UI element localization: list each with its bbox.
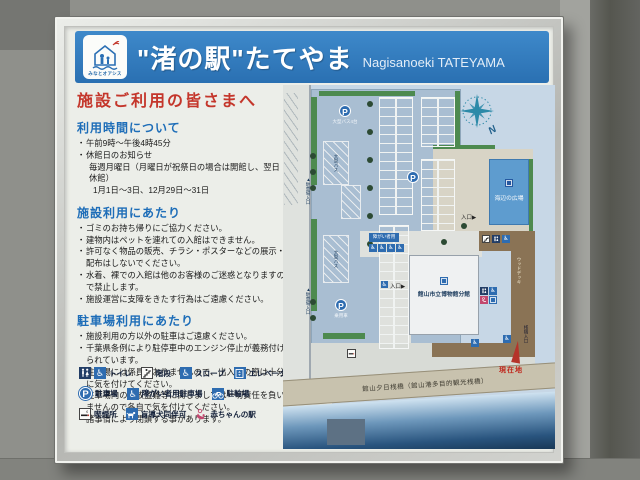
slope-icon: ♿	[180, 367, 192, 379]
parking-icon: P	[79, 387, 92, 400]
wheelchair-icon: ♿	[387, 244, 395, 252]
entrance-text: 入口	[461, 215, 472, 221]
facility-line: ゴミのお持ち帰りにご協力ください。	[77, 223, 285, 235]
lot-entrance-text: 駐車場入口	[306, 182, 311, 205]
green-strip	[311, 219, 317, 311]
parking-stalls	[421, 97, 455, 147]
parking-icon: P	[335, 299, 347, 311]
sign-title: "渚の駅"たてやま	[137, 39, 353, 76]
hours-heading: 利用時間について	[77, 119, 285, 136]
parking-stalls	[421, 159, 455, 231]
toilet-icon	[79, 367, 91, 379]
parking-icon: P	[339, 105, 351, 117]
bus-stall: 大型バス	[323, 235, 349, 283]
tree	[367, 213, 373, 219]
wheelchair-icon: ♿	[503, 335, 511, 343]
legend-parking: P 駐車場	[79, 387, 118, 400]
wall-dark-edge	[590, 0, 640, 480]
legend-label: スロープ	[195, 368, 225, 379]
legend-bicycle: 駐輪場	[212, 388, 250, 400]
tree	[367, 157, 373, 163]
bus-stall-label: 大型バス	[333, 154, 339, 172]
tree	[461, 223, 467, 229]
facility-line: 許可なく物品の販売、チラシ・ポスターなどの展示・配布はしないでください。	[77, 246, 285, 270]
facility-heading: 施設利用にあたり	[77, 204, 285, 221]
wheelchair-icon: ♿	[381, 281, 388, 288]
legend-label: 駐輪場	[227, 388, 250, 399]
parking-heading: 駐車場利用にあたり	[77, 312, 285, 329]
sign-panel: みなとオアシス "渚の駅"たてやま Nagisanoeki TATEYAMA 施…	[64, 26, 554, 453]
parking-line: 施設利用の方以外の駐車はご遠慮ください。	[77, 331, 285, 343]
tree	[441, 239, 447, 245]
bus-stall	[341, 185, 361, 219]
compass-n-label: N	[487, 124, 499, 137]
hours-list: 午前9時～午後4時45分 休館日のお知らせ 毎週月曜日（月曜日が祝祭日の場合は開…	[77, 138, 285, 197]
lot-entrance-label: ▲駐車場入口	[305, 177, 311, 205]
small-building	[327, 419, 365, 445]
facility-line: 建物内はペットを連れての入館はできません。	[77, 235, 285, 247]
header-banner: みなとオアシス "渚の駅"たてやま Nagisanoeki TATEYAMA	[75, 31, 549, 83]
legend-row: 喫煙所 盲導犬同伴可 赤ちゃんの駅	[79, 408, 297, 420]
legend-label: 階段	[156, 368, 171, 379]
hours-line: 毎週月曜日（月曜日が祝祭日の場合は開館し、翌日休館）	[77, 162, 285, 186]
legend-label: トイレ	[109, 368, 132, 379]
tree	[367, 185, 373, 191]
legend-row: ♿ トイレ 階段 ♿ スロープ エレベーター	[79, 367, 297, 379]
toilet-icon	[480, 287, 488, 295]
tree	[310, 169, 316, 175]
green-strip	[319, 91, 415, 96]
lot-entrance-text: 駐車場入口	[306, 292, 311, 315]
museum-label: 館山市立博物館分館	[409, 289, 479, 298]
compass-rose	[459, 93, 495, 129]
arrow-right-icon: ▶	[401, 284, 405, 290]
wheelchair-icon: ♿	[471, 339, 479, 347]
legend-label: 喫煙所	[94, 409, 117, 420]
bus-stall-label: 大型バス	[333, 250, 339, 268]
tree	[310, 153, 316, 159]
smoking-icon	[347, 349, 356, 358]
green-strip	[529, 159, 533, 231]
pier-label: 館山夕日桟橋（館山港多目的観光桟橋）	[362, 375, 488, 393]
wheelchair-icon: ♿	[94, 367, 106, 379]
facility-list: ゴミのお持ち帰りにご協力ください。 建物内はペットを連れての入館はできません。 …	[77, 223, 285, 305]
guide-dog-icon	[126, 408, 138, 420]
elevator-icon	[505, 179, 513, 187]
legend-smoking: 喫煙所	[79, 408, 117, 420]
legend-row: P 駐車場 ♿ 障がい者用駐車場 駐輪場	[79, 387, 297, 400]
baby-icon	[195, 408, 207, 420]
bicycle-icon	[212, 388, 224, 400]
baby-icon	[480, 296, 488, 304]
legend-accessible-parking: ♿ 障がい者用駐車場	[127, 388, 203, 400]
legend-label: 障がい者用駐車場	[142, 388, 203, 399]
wheelchair-icon: ♿	[502, 235, 510, 243]
logo-text: みなとオアシス	[88, 71, 121, 77]
notice-title: 施設ご利用の皆さまへ	[77, 87, 285, 111]
bus-stall: 大型バス	[323, 141, 349, 185]
deck-label: ウッドデッキ	[516, 257, 522, 284]
hours-line: 午前9時～午後4時45分	[77, 138, 285, 150]
plaza-label: 海辺の広場	[489, 193, 529, 202]
lot-entrance-label: ▲駐車場入口	[305, 287, 311, 315]
minato-oasis-logo: みなとオアシス	[83, 35, 127, 79]
tree	[367, 129, 373, 135]
house-waves-icon	[88, 41, 122, 71]
legend-label: 駐車場	[95, 388, 118, 399]
elevator-icon	[489, 296, 497, 304]
elevator-icon	[440, 277, 448, 285]
green-strip	[323, 333, 365, 339]
wall-pillar	[560, 0, 590, 480]
smoking-icon	[79, 408, 91, 420]
toilet-icon	[492, 235, 500, 243]
facility-line: 水着、裸での入館は他のお客様のご迷惑となりますので禁止します。	[77, 270, 285, 294]
p3-label: 乗用車	[325, 313, 357, 319]
sign-subtitle: Nagisanoeki TATEYAMA	[363, 55, 505, 70]
wheelchair-icon: ♿	[369, 244, 377, 252]
road-hatch	[284, 93, 298, 205]
entrance-text: 入口	[390, 284, 401, 290]
accessible-parking-sign: 障がい者用	[369, 233, 399, 242]
hours-line: 休館日のお知らせ	[77, 150, 285, 162]
wheelchair-icon: ♿	[489, 287, 497, 295]
parking-stalls	[379, 97, 413, 215]
tree	[310, 315, 316, 321]
legend-baby: 赤ちゃんの駅	[195, 408, 256, 420]
site-map: 大型バス 大型バス P 大型バス4台 P P 乗用車 ▲駐車場入口 ▲駐車場入口…	[283, 85, 555, 449]
parking-line: 千葉県条例により駐停車中のエンジン停止が義務付けられています。	[77, 343, 285, 367]
facility-line: 施設運営に支障をきたす行為はご遠慮ください。	[77, 294, 285, 306]
legend-stairs: 階段	[141, 367, 171, 379]
p1-label: 大型バス4台	[325, 119, 365, 125]
pier-entrance-label: 桟橋入口	[523, 325, 529, 343]
stairs-icon	[482, 235, 490, 243]
legend-toilet: ♿ トイレ	[79, 367, 132, 379]
tree	[367, 101, 373, 107]
elevator-icon	[234, 367, 246, 379]
hours-line: 1月1日～3日、12月29日～31日	[77, 185, 285, 197]
legend-slope: ♿ スロープ	[180, 367, 225, 379]
seaside-plaza-building	[489, 159, 529, 225]
sign-board: みなとオアシス "渚の駅"たてやま Nagisanoeki TATEYAMA 施…	[54, 16, 564, 464]
wheelchair-icon: ♿	[378, 244, 386, 252]
legend-guide-dog: 盲導犬同伴可	[126, 408, 187, 420]
legend-label: 赤ちゃんの駅	[210, 409, 256, 420]
map-legend: ♿ トイレ 階段 ♿ スロープ エレベーター	[79, 367, 297, 428]
stairs-icon	[141, 367, 153, 379]
parking-icon: P	[407, 171, 419, 183]
current-location-label: 現在地	[499, 365, 523, 375]
arrow-right-icon: ▶	[472, 215, 476, 221]
legend-label: 盲導犬同伴可	[141, 409, 187, 420]
accessible-parking-icon: ♿	[127, 388, 139, 400]
plaza-entrance-label: 入口▶	[461, 213, 476, 221]
wheelchair-icon: ♿	[396, 244, 404, 252]
museum-entrance-label: 入口▶	[390, 282, 405, 290]
